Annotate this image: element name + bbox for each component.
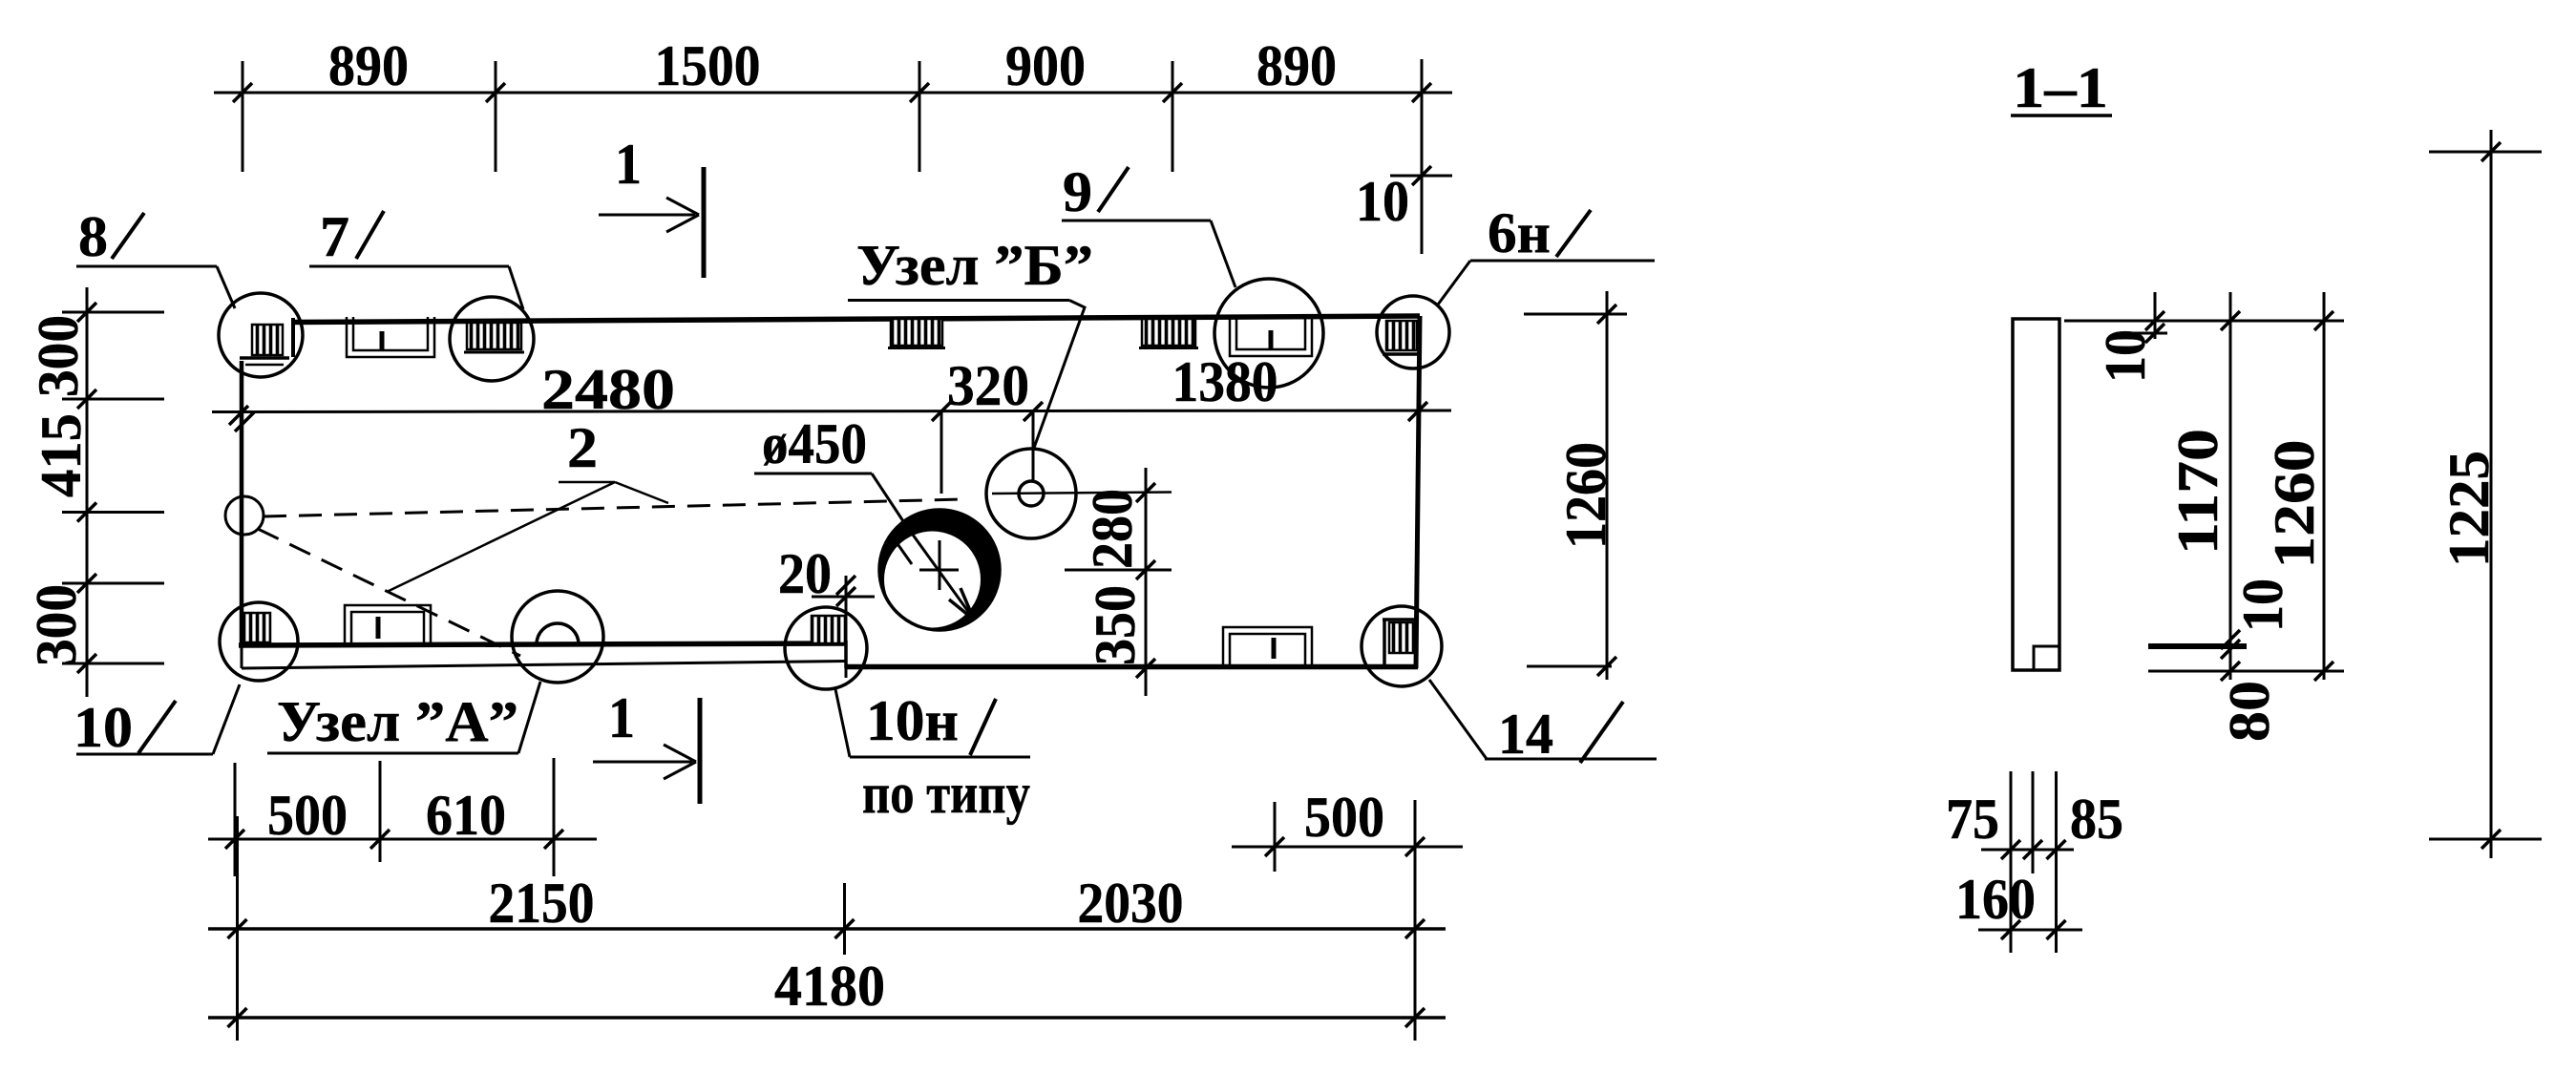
- svg-text:Узел ”А”: Узел ”А”: [277, 690, 518, 753]
- svg-text:1225: 1225: [2438, 451, 2501, 567]
- svg-text:2150: 2150: [489, 872, 595, 935]
- svg-text:350: 350: [1084, 585, 1147, 665]
- svg-text:80: 80: [2218, 681, 2281, 742]
- svg-text:1: 1: [615, 133, 642, 196]
- svg-text:10: 10: [2094, 329, 2157, 383]
- svg-text:500: 500: [1304, 786, 1384, 849]
- svg-text:1260: 1260: [2263, 440, 2326, 569]
- svg-text:320: 320: [947, 354, 1029, 417]
- svg-text:1500: 1500: [655, 34, 761, 97]
- svg-text:900: 900: [1005, 34, 1086, 97]
- svg-text:85: 85: [2070, 788, 2123, 851]
- svg-text:500: 500: [267, 784, 348, 847]
- svg-text:10: 10: [74, 696, 133, 759]
- svg-text:10н: 10н: [866, 689, 959, 752]
- svg-text:10: 10: [1356, 170, 1409, 233]
- svg-text:415: 415: [30, 413, 93, 497]
- svg-text:75: 75: [1946, 788, 1999, 851]
- svg-text:14: 14: [1498, 703, 1553, 766]
- svg-text:2: 2: [567, 416, 598, 479]
- svg-text:10: 10: [2231, 579, 2294, 632]
- svg-text:1–1: 1–1: [2013, 56, 2108, 119]
- svg-text:7: 7: [320, 205, 349, 268]
- svg-text:1170: 1170: [2166, 429, 2229, 555]
- svg-text:1380: 1380: [1172, 350, 1278, 413]
- svg-text:6н: 6н: [1488, 201, 1551, 264]
- svg-text:890: 890: [1256, 34, 1337, 97]
- svg-text:Узел ”Б”: Узел ”Б”: [856, 234, 1093, 297]
- svg-text:20: 20: [778, 542, 832, 605]
- svg-text:4180: 4180: [774, 955, 885, 1018]
- svg-text:300: 300: [25, 584, 88, 666]
- svg-text:по типу: по типу: [862, 762, 1030, 825]
- svg-text:1: 1: [608, 686, 635, 749]
- svg-text:9: 9: [1063, 160, 1092, 223]
- svg-text:8: 8: [78, 205, 108, 268]
- svg-text:280: 280: [1081, 489, 1144, 569]
- svg-text:ø450: ø450: [762, 412, 867, 475]
- svg-text:300: 300: [27, 315, 90, 397]
- svg-text:2480: 2480: [541, 358, 675, 421]
- svg-text:2030: 2030: [1078, 872, 1184, 935]
- svg-text:1260: 1260: [1554, 442, 1617, 549]
- svg-text:890: 890: [328, 34, 409, 97]
- svg-text:610: 610: [426, 784, 506, 847]
- svg-text:160: 160: [1955, 868, 2036, 931]
